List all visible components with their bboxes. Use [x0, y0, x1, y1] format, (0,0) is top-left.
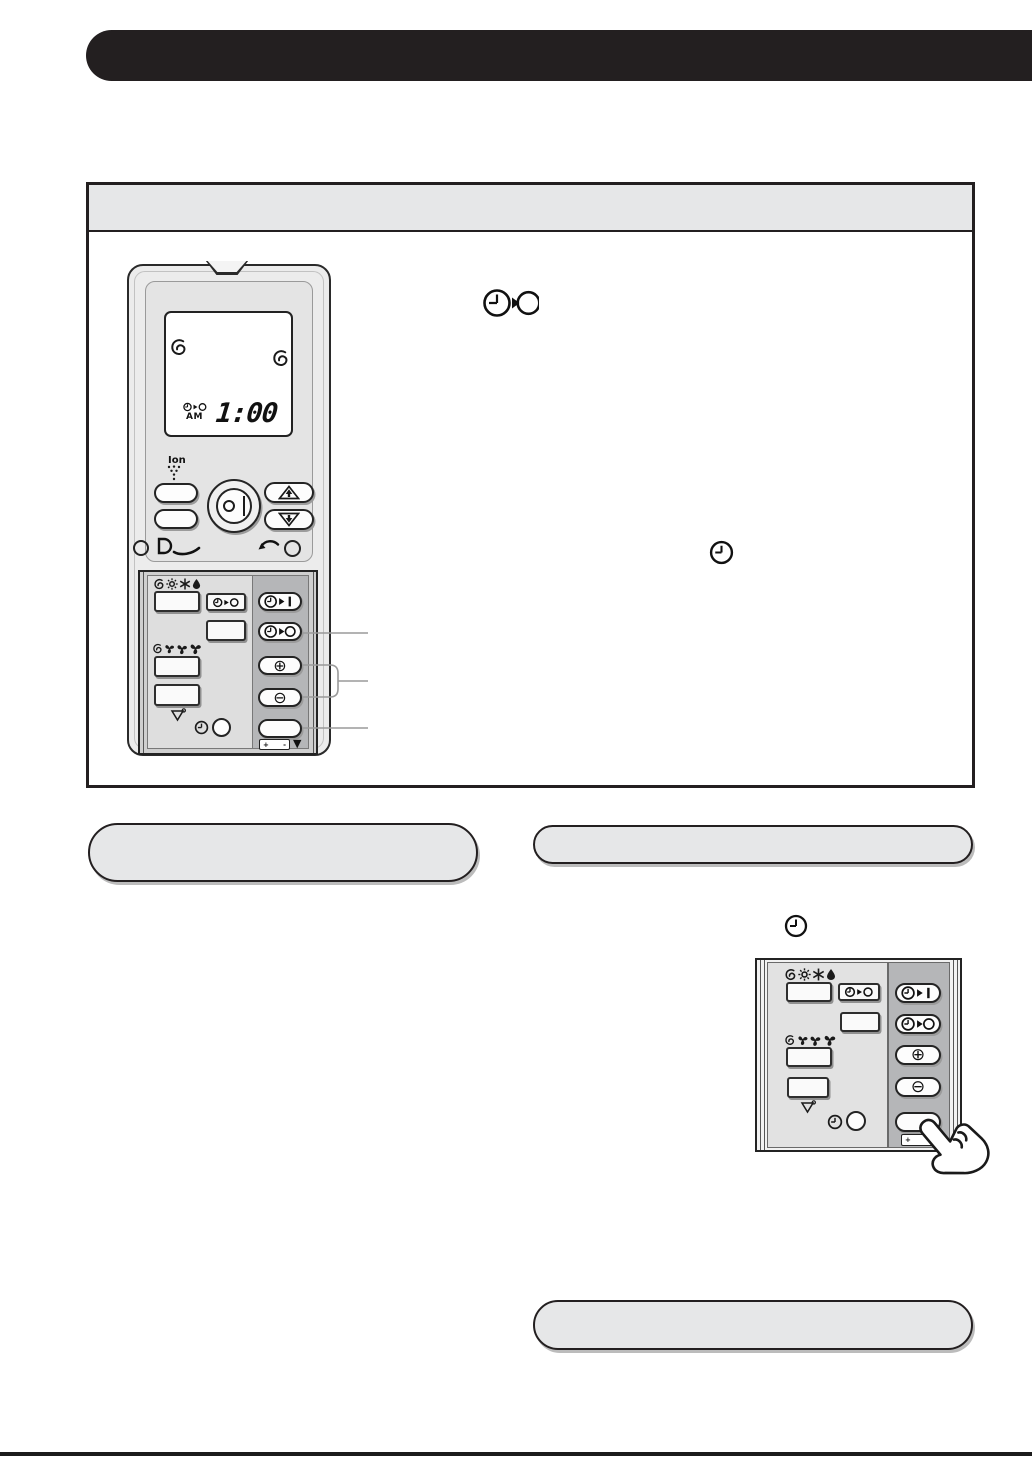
zoom-fan-low-icon	[797, 1034, 809, 1046]
zoom-timer-off-mini-icon	[844, 986, 874, 998]
heat-mode-icon	[166, 578, 178, 590]
zoom-fan-med-icon	[809, 1034, 821, 1047]
dc-logo-icon	[154, 536, 202, 558]
battery-minus-label: -	[283, 741, 286, 749]
dry-mode-icon	[192, 578, 201, 590]
ion-dots-icon	[165, 465, 183, 482]
lcd-timer-off-icon	[183, 402, 207, 412]
pointing-hand-icon	[916, 1104, 998, 1188]
lcd-am-label: AM	[186, 412, 203, 422]
battery-arrow: ▼	[293, 737, 301, 750]
zoom-timer-off-icon	[901, 1016, 935, 1032]
plus-circled-glyph: ⊕	[273, 658, 286, 674]
minus-circled-glyph: ⊖	[273, 690, 286, 706]
header-bar	[86, 30, 1032, 81]
zoom-mode-icons	[784, 967, 836, 981]
aux-rect-button	[206, 620, 246, 641]
fan-speed-high-icon	[189, 642, 202, 655]
timer-off-heading-icon	[483, 287, 539, 319]
temp-up-button	[264, 482, 314, 503]
zoom-panel-left-rail	[760, 960, 761, 1150]
temp-down-button	[264, 509, 314, 530]
zoom-panel-left-rail-2	[764, 960, 765, 1150]
lcd-swirl-left-icon	[169, 337, 188, 357]
clock-icon	[194, 720, 209, 735]
timer-off-icon	[264, 624, 296, 639]
timer-on-button	[258, 592, 302, 611]
battery-icon: + -	[259, 739, 290, 750]
display-button	[154, 684, 200, 706]
clock-set-button	[212, 718, 231, 737]
indicator-lamp-right	[284, 540, 301, 557]
zoom-cool-mode-icon	[812, 968, 825, 981]
figure-header-strip	[89, 185, 972, 232]
step-clock-icon	[784, 914, 808, 938]
zoom-timer-on-button	[895, 983, 941, 1003]
note-box	[533, 1300, 973, 1350]
auto-fan-icon	[152, 643, 163, 654]
fan-speed-med-icon	[176, 643, 188, 655]
callout-lines	[296, 620, 376, 735]
zoom-time-back-button: ⊖	[895, 1077, 941, 1097]
battery-plus-label: +	[263, 741, 269, 749]
zoom-fan-button	[786, 1047, 832, 1067]
mode-icons	[153, 577, 201, 590]
zoom-auto-fan-icon	[784, 1034, 796, 1046]
zoom-dry-mode-icon	[826, 968, 836, 981]
zoom-auto-mode-icon	[784, 968, 797, 981]
fan-speed-low-icon	[164, 643, 175, 654]
lcd-time: 1:00	[214, 398, 278, 429]
aux-button	[154, 509, 198, 529]
page: AM 1:00 Ion	[0, 0, 1032, 1458]
zoom-heat-mode-icon	[798, 968, 811, 981]
timer-on-icon	[264, 594, 296, 609]
clock-inline-icon	[709, 540, 734, 565]
zoom-fan-high-icon	[823, 1033, 836, 1047]
power-on-icon	[243, 496, 245, 516]
zoom-clock-icon	[827, 1114, 843, 1130]
fan-button	[154, 656, 200, 677]
fan-icons	[152, 642, 202, 655]
lcd-swirl-right-icon	[271, 348, 290, 368]
callout-box-right	[533, 825, 973, 864]
zoom-time-advance-button: ⊕	[895, 1045, 941, 1065]
zoom-timer-off-mini-button	[838, 983, 880, 1001]
zoom-display-button	[787, 1077, 829, 1098]
callout-box-left	[88, 823, 478, 882]
zoom-timer-off-button	[895, 1014, 941, 1034]
zoom-mode-button	[786, 982, 832, 1002]
ion-button	[154, 483, 198, 503]
zoom-timer-on-icon	[901, 985, 935, 1001]
triangle-up-icon	[278, 485, 300, 500]
auto-mode-icon	[153, 578, 165, 590]
timer-off-mini-button	[206, 593, 246, 611]
zoom-fan-icons	[784, 1033, 836, 1047]
power-standby-icon	[223, 500, 235, 512]
zoom-aux-rect-button	[840, 1012, 880, 1032]
mode-button	[154, 591, 200, 612]
zoom-battery-plus-label: +	[905, 1136, 911, 1144]
bottom-rule	[0, 1452, 1032, 1456]
display-icon	[170, 708, 186, 722]
timer-off-mini-icon	[212, 597, 240, 608]
zoom-display-icon	[800, 1100, 816, 1114]
panel-left-rail	[143, 572, 144, 753]
cool-mode-icon	[179, 578, 191, 590]
triangle-down-icon	[278, 512, 300, 527]
indicator-lamp-left	[133, 540, 149, 556]
zoom-plus-circled-glyph: ⊕	[911, 1047, 925, 1064]
swing-swoosh-icon	[258, 540, 280, 555]
zoom-minus-circled-glyph: ⊖	[911, 1079, 925, 1096]
zoom-clock-set-button	[846, 1111, 866, 1131]
